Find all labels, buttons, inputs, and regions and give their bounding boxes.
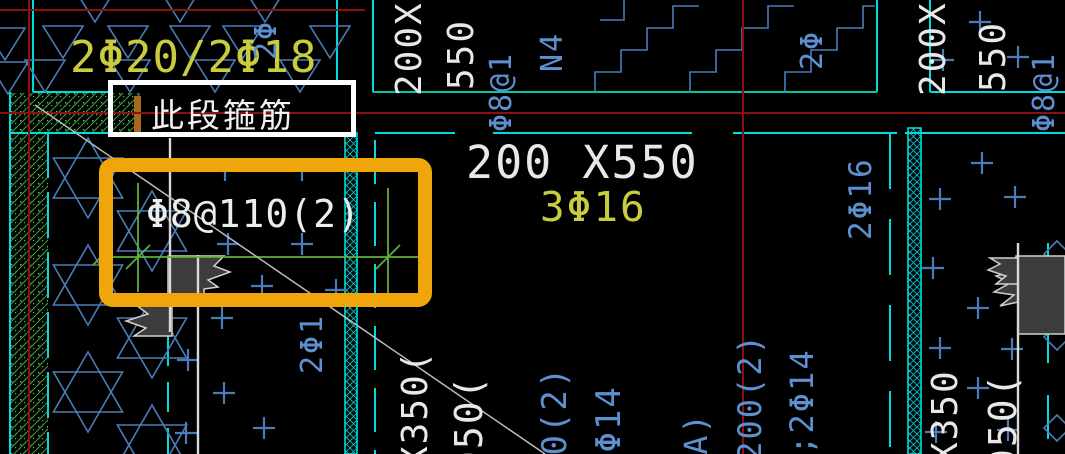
rotated-beam-size-top-right-1: 200X xyxy=(916,1,952,96)
rotated-bar-count-left: 2Φ xyxy=(252,20,282,60)
rotated-beam-size-top-center-2: 550 xyxy=(444,19,480,90)
stair-pattern xyxy=(595,0,875,92)
rotated-beam-mark-1a: 1A) xyxy=(680,412,712,454)
beam-size-label: 200 X550 xyxy=(466,136,699,189)
rotated-beam-size-bottom-center-1: X350( xyxy=(398,350,434,454)
callout-box: 此段箍筋 xyxy=(108,80,356,137)
rotated-stirrup-at200: @200(2) xyxy=(734,333,766,454)
rotated-bars-2phi14: 2Φ14 xyxy=(592,385,626,454)
rotated-beam-size-bottom-right-1: X350 xyxy=(928,369,964,454)
stirrup-highlight-box xyxy=(99,158,432,307)
rotated-bars-2phi1: 2Φ1 xyxy=(298,314,328,374)
rotated-beam-size-bottom-center-2: 050( xyxy=(450,374,488,454)
rotated-beam-size-top-right-2: 550 xyxy=(976,21,1012,92)
rotated-bar-count-right: 2Φ xyxy=(798,30,828,70)
rotated-bars-2-2phi14: 2;2Φ14 xyxy=(786,348,818,454)
rotated-stirrup-top-right: Φ8@1 xyxy=(1030,52,1060,132)
rotated-stirrup-bottom-center-1: 00(2) xyxy=(538,366,572,454)
callout-label: 此段箍筋 xyxy=(151,89,295,137)
rotated-side-bars-2phi16: 2Φ16 xyxy=(846,157,877,240)
rotated-beam-size-bottom-right-2: 050( xyxy=(984,372,1022,454)
beam-bottom-bars-label: 3Φ16 xyxy=(540,187,647,228)
cad-drawing-canvas[interactable]: 2Φ20/2Φ18 Φ8@110(2) 200 X550 3Φ16 200X 5… xyxy=(0,0,1065,454)
rotated-bar-mark-n4: N4 xyxy=(538,32,568,72)
rotated-stirrup-top-center: Φ8@1 xyxy=(487,52,517,132)
rotated-beam-size-top-center-1: 200X xyxy=(392,1,428,96)
